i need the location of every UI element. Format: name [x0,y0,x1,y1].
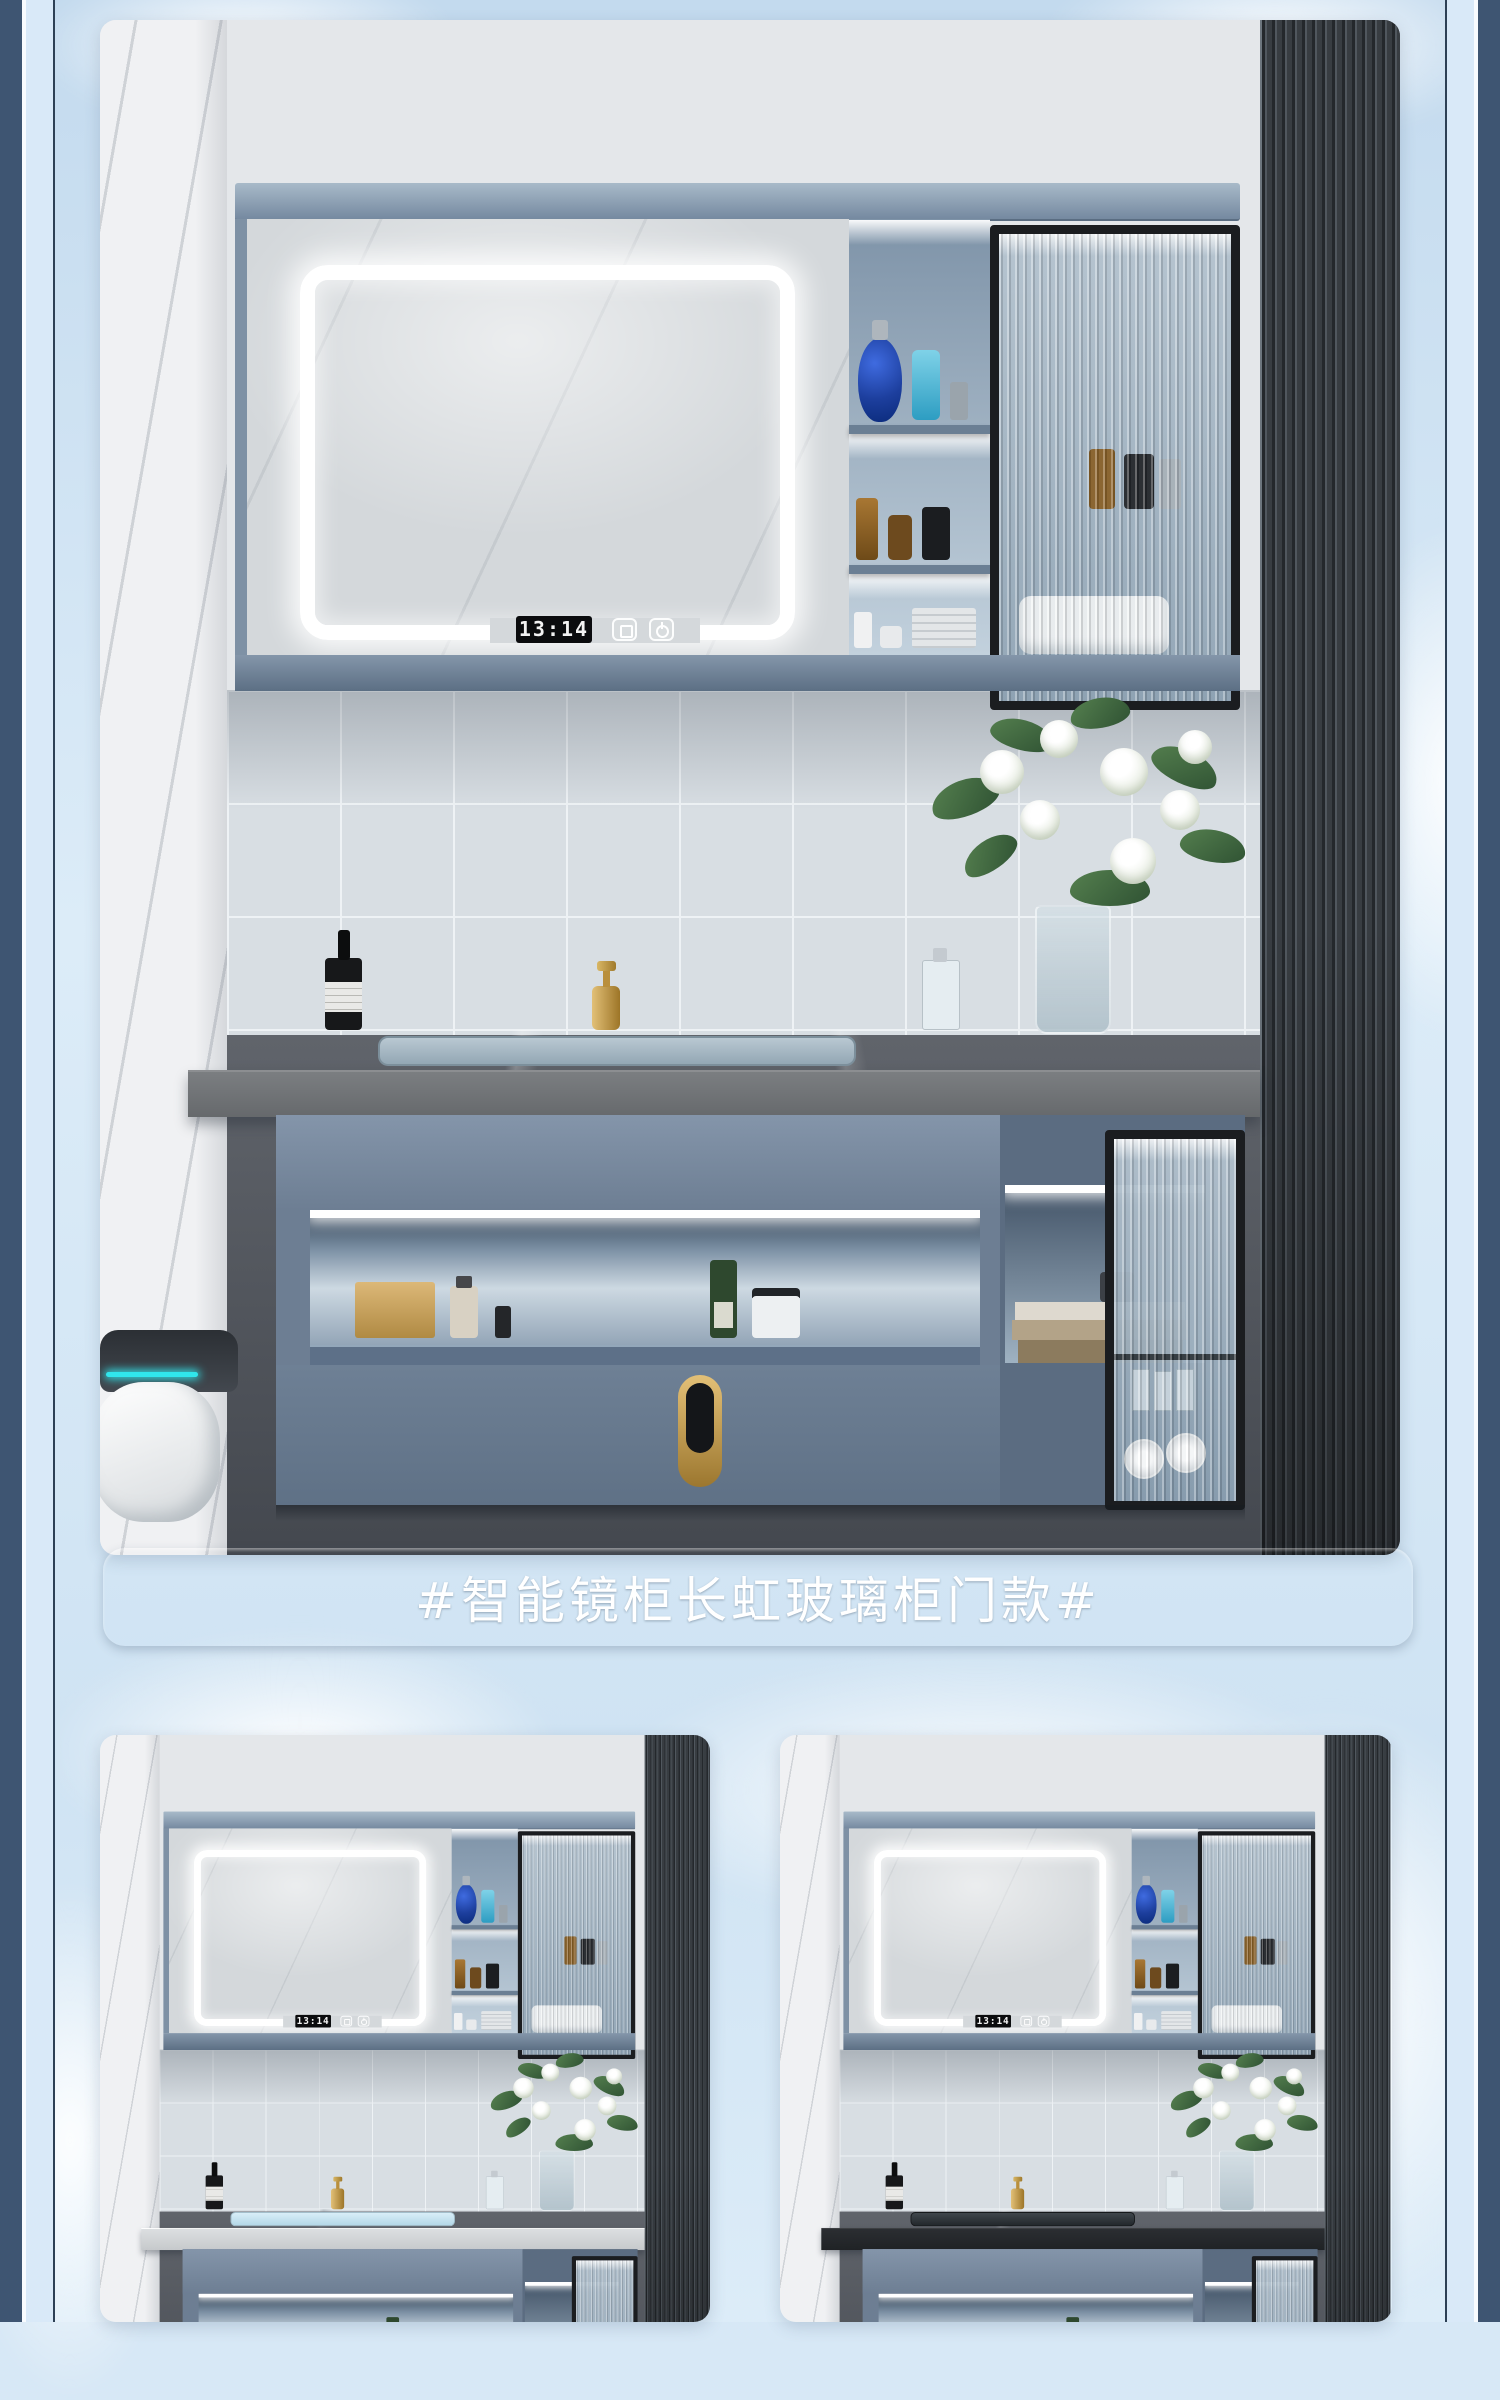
leaf [502,2113,533,2141]
white-rose [1160,790,1200,830]
left-navy-rail [0,0,22,2322]
partition-shade [1325,2158,1391,2322]
defog-icon [612,618,637,641]
white-bottle [1134,2013,1142,2030]
marble-column [100,20,228,1555]
shelf-led [1132,1829,1198,1841]
bathroom-scene: 13:14 [780,1735,1390,2322]
vase-cap [462,1876,470,1885]
black-bottle [1166,1964,1179,1989]
vase-cap [872,320,888,340]
sink-basin [911,2212,1135,2226]
shelf-led [849,574,990,599]
small-bottle [1179,1905,1187,1923]
mirror-cabinet-top-frame [235,183,1240,221]
defog-glyph [620,625,633,638]
power-line [1043,2018,1044,2021]
white-rose-bouquet [485,2050,649,2167]
vase-cap [1142,1876,1150,1885]
gold-faucet [331,2189,344,2210]
power-icon [358,2016,370,2027]
dropper-cap [338,930,350,960]
left-blue-band [26,0,53,2322]
shelf-led [452,1829,518,1841]
shelf-board [452,1925,518,1929]
niche-led-strip [879,2294,1194,2298]
lit-open-niche [879,2294,1194,2322]
amber-bottle [856,498,878,560]
side-fluted-glass-door [572,2256,638,2322]
lit-open-niche [310,1210,980,1345]
defog-icon [1020,2016,1032,2027]
white-jar [880,626,902,648]
counter-front-edge [821,2228,1324,2250]
leaf [1068,693,1132,733]
green-bottle [1066,2317,1079,2322]
amber-bottle [455,1959,465,1988]
gold-faucet-neck [603,970,610,987]
under-cabinet-shadow [276,1505,1245,1521]
blue-glass-vase [858,338,902,422]
white-rose [532,2101,551,2120]
perfume-bottle [486,2176,504,2209]
shelf-board [849,425,990,434]
perfume-cap [491,2171,498,2178]
leaf [957,826,1023,885]
green-bottle-label [714,1302,733,1328]
silver-box [1161,2011,1191,2030]
shelf-led [1132,1995,1198,2007]
defog-glyph [1024,2019,1030,2025]
sink-basin [231,2212,455,2226]
reeded-glass-texture [522,1835,631,2054]
leaf [554,2051,584,2070]
silver-box [481,2011,511,2030]
white-rose [1020,800,1060,840]
side-fluted-glass-door [1252,2256,1318,2322]
white-rose [1286,2068,1302,2084]
cyan-bottle [1161,1890,1174,1923]
gold-box [355,1282,435,1338]
mirror-clock: 13:14 [295,2015,331,2028]
shelf-led [1132,1929,1198,1941]
small-vial [495,1306,511,1338]
niche-led-strip [199,2294,514,2298]
white-rose [606,2068,622,2084]
niche-floor [310,1345,980,1367]
gold-faucet-neck [1016,2181,1019,2189]
dropper-label [325,982,362,1012]
dropper-cap [892,2162,898,2176]
fluted-glass-sliding-door [990,225,1240,710]
led-light-ring [300,265,795,640]
shelf-board [849,565,990,574]
shelf-led [849,434,990,459]
niche-led-strip [310,1210,980,1218]
white-rose [980,750,1024,794]
fluted-glass-sliding-door [518,1831,635,2059]
mirror-cabinet-top-frame [163,1812,635,1830]
brown-bottle [1150,1967,1161,1988]
black-bottle [922,507,950,560]
dropper-label [206,2187,223,2201]
shelf-led [849,220,990,245]
mirror-cabinet-bottom-frame [235,655,1240,691]
reeded-glass-texture [1114,1139,1236,1501]
shelf-led [452,1995,518,2007]
beige-bottle [450,1286,478,1338]
gold-faucet [592,986,620,1030]
white-rose [513,2078,534,2099]
leaf [1182,2113,1213,2141]
drawer-handle-inset [686,1383,714,1453]
white-bottle [854,612,872,648]
cream-jar [752,1296,800,1338]
silver-box [912,608,976,648]
shelf-board [1132,1991,1198,1995]
white-jar [1146,2020,1156,2030]
mirror-clock: 13:14 [975,2015,1011,2028]
power-icon [649,618,674,641]
mirror-cabinet-top-frame [843,1812,1315,1830]
caption-banner: #智能镜柜长虹玻璃柜门款# [103,1548,1413,1646]
reeded-glass-texture [576,2260,633,2322]
white-rose [1250,2077,1273,2100]
shelf-board [1132,1925,1198,1929]
right-navy-rail [1478,0,1500,2322]
cyan-bottle [912,350,940,420]
led-light-ring [194,1850,426,2026]
white-rose [574,2119,596,2141]
product-detail-page: { "page": { "background_sky": "#d7e8f6",… [0,0,1500,2322]
gold-faucet-head [597,961,616,971]
dropper-cap [212,2162,218,2176]
white-rose [541,2064,559,2082]
reeded-glass-texture [999,234,1231,701]
white-rose [1100,748,1148,796]
blue-glass-vase [456,1884,477,1923]
caption-text: #智能镜柜长虹玻璃柜门款# [415,1561,1101,1633]
mirror-cabinet-bottom-frame [163,2033,635,2050]
white-rose [1278,2097,1297,2116]
mirror-clock: 13:14 [516,616,592,643]
power-line [661,622,663,629]
white-rose [570,2077,593,2100]
vanity-top-rail [183,2249,523,2294]
smart-toilet-bowl [100,1382,220,1522]
toilet-cyan-light [106,1372,198,1377]
white-bottle [454,2013,462,2030]
mirror-cabinet-bottom-frame [843,2033,1315,2050]
lit-open-niche [199,2294,514,2322]
perfume-bottle [1166,2176,1184,2209]
amber-bottle [1135,1959,1145,1988]
product-photo-main[interactable]: 13:14 [100,20,1400,1555]
perfume-cap [1171,2171,1178,2178]
defog-glyph [344,2019,350,2025]
reeded-glass-texture [1256,2260,1313,2322]
white-rose-bouquet [1165,2050,1329,2167]
brown-bottle [470,1967,481,1988]
reeded-glass-texture [1202,1835,1311,2054]
black-bottle [486,1964,499,1989]
product-photo-small-right[interactable]: 13:14 [780,1735,1392,2322]
cyan-bottle [481,1890,494,1923]
gold-faucet-head [333,2177,342,2182]
white-rose [1221,2064,1239,2082]
left-dark-line [53,0,55,2322]
power-line [363,2018,364,2021]
partition-shade [645,2158,710,2322]
vanity-top-rail [863,2249,1203,2294]
right-blue-band [1447,0,1474,2322]
white-rose [1178,730,1212,764]
blue-glass-vase [1136,1884,1157,1923]
counter-front-edge [141,2228,644,2250]
green-bottle [386,2317,399,2322]
white-rose-bouquet [920,690,1270,940]
defog-icon [340,2016,352,2027]
perfume-bottle [922,960,960,1030]
beige-bottle-cap [456,1276,472,1288]
bathroom-scene: 13:14 [100,20,1400,1555]
counter-front-edge [188,1070,1260,1117]
white-rose [1193,2078,1214,2099]
perfume-cap [933,948,947,962]
white-rose [1110,838,1156,884]
partition-shade [1260,920,1400,1555]
white-rose [1212,2101,1231,2120]
gold-faucet-head [1013,2177,1022,2182]
gold-faucet [1011,2189,1024,2210]
white-jar [466,2020,476,2030]
brown-bottle [888,515,912,560]
vanity-top-rail [276,1115,1000,1210]
gold-faucet-neck [336,2181,339,2189]
side-fluted-glass-door [1105,1130,1245,1510]
leaf [1234,2051,1264,2070]
leaf [1178,825,1249,868]
product-photo-small-left[interactable]: 13:14 [100,1735,710,2322]
shelf-led [452,1929,518,1941]
vanity-drawer [276,1365,1000,1505]
dropper-label [886,2187,903,2201]
leaf [606,2113,639,2133]
small-bottle [950,382,968,420]
small-bottle [499,1905,507,1923]
white-rose [1040,720,1078,758]
white-rose [598,2097,617,2116]
leaf [1286,2113,1319,2133]
white-rose [1254,2119,1276,2141]
power-icon [1038,2016,1050,2027]
shelf-board [452,1991,518,1995]
sink-basin [378,1036,856,1066]
led-light-ring [874,1850,1106,2026]
fluted-glass-sliding-door [1198,1831,1315,2059]
mirror-cabinet-left-frame [235,219,247,655]
bathroom-scene: 13:14 [100,1735,710,2322]
